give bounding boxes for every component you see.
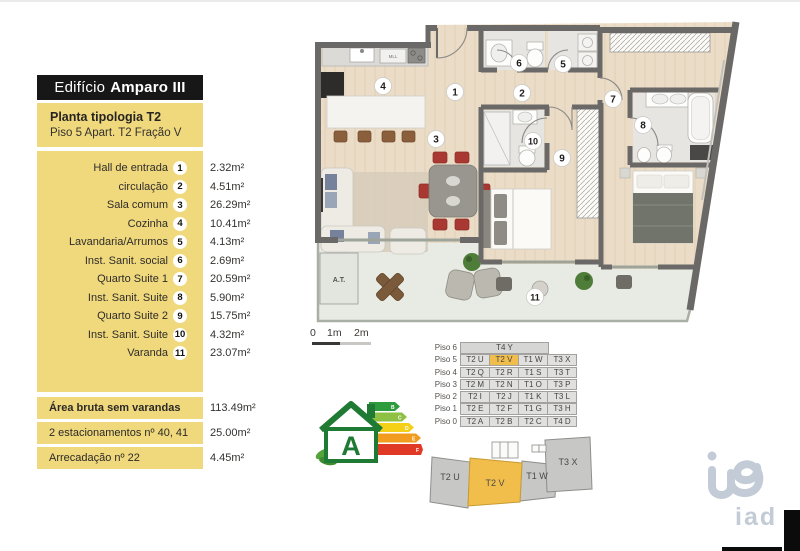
room-label: Lavandaria/Arrumos <box>37 236 168 248</box>
floor-label: Piso 3 <box>424 379 460 391</box>
room-row: circulação24.51m² <box>37 178 282 197</box>
floor-row: Piso 0 T2 A T2 B T2 C T4 D <box>424 416 577 428</box>
summary-area: 113.49m² <box>210 397 256 419</box>
unit-cell: T2 M <box>460 379 490 391</box>
lounge-chair <box>444 269 475 302</box>
marker-8: 8 <box>635 117 652 134</box>
scale-segment-light <box>340 342 371 345</box>
room-number-badge: 5 <box>173 235 187 249</box>
summary-row-gross-area: Área bruta sem varandas 113.49m² <box>37 397 282 419</box>
plan-subtitle: Planta tipologia T2 Piso 5 Apart. T2 Fra… <box>37 103 203 147</box>
scale-tick-0: 0 <box>310 327 316 339</box>
room-label: Quarto Suite 1 <box>37 273 168 285</box>
svg-text:7: 7 <box>610 95 616 106</box>
svg-text:F: F <box>416 448 419 454</box>
svg-text:4: 4 <box>380 82 386 93</box>
floors-matrix: Piso 6 T4 Y Piso 5 T2 U T2 V T1 W T3 X P… <box>424 342 577 428</box>
building-outline-diagram: T2 U T2 V T1 W T3 X <box>420 433 670 538</box>
room-number-badge: 6 <box>173 254 187 268</box>
room-number-badge: 3 <box>173 198 187 212</box>
marker-3: 3 <box>428 131 445 148</box>
room-area: 10.41m² <box>210 218 250 230</box>
unit-cell: T1 W <box>518 354 548 366</box>
outline-unit-t2u <box>430 457 470 508</box>
room-number-badge: 9 <box>173 309 187 323</box>
svg-text:9: 9 <box>559 154 565 165</box>
fridge <box>320 72 344 98</box>
dining-table <box>429 165 477 217</box>
unit-cell: T2 F <box>489 403 519 415</box>
room-label: Inst. Sanit. Suite <box>37 329 168 341</box>
unit-cell: T1 G <box>518 403 548 415</box>
svg-text:1: 1 <box>452 88 458 99</box>
marker-9: 9 <box>554 150 571 167</box>
floor-label: Piso 6 <box>424 342 460 354</box>
floor-label: Piso 0 <box>424 416 460 428</box>
photo-frame-corner <box>782 508 800 551</box>
marker-10: 10 <box>525 133 542 150</box>
energy-class-letter: A <box>341 431 361 461</box>
room-area: 2.69m² <box>210 255 244 267</box>
unit-cell: T3 P <box>547 379 577 391</box>
nightstand <box>620 168 630 178</box>
unit-cell: T2 N <box>489 379 519 391</box>
wardrobe-suite2 <box>577 105 600 218</box>
summary-label: Área bruta sem varandas <box>37 397 203 419</box>
nightstand <box>696 168 706 178</box>
building-title: Edifício Amparo III <box>37 75 203 100</box>
room-label: Quarto Suite 2 <box>37 310 168 322</box>
floor-plan: MLL <box>310 15 800 335</box>
svg-text:8: 8 <box>640 121 646 132</box>
outline-label-t3x: T3 X <box>558 457 577 467</box>
scale-tick-2m: 2m <box>354 327 369 339</box>
unit-cell: T3 H <box>547 403 577 415</box>
svg-text:3: 3 <box>433 135 439 146</box>
room-number-badge: 7 <box>173 272 187 286</box>
floor-row: Piso 5 T2 U T2 V T1 W T3 X <box>424 354 577 366</box>
energy-certificate-icon: B C D E F A <box>313 396 423 468</box>
bidet <box>638 148 651 163</box>
room-row: Inst. Sanit. Suite85.90m² <box>37 289 282 308</box>
unit-cell: T2 R <box>489 367 519 379</box>
room-area: 26.29m² <box>210 199 250 211</box>
scale-segment-dark <box>312 342 340 345</box>
floor-label: Piso 5 <box>424 354 460 366</box>
room-label: Varanda <box>37 347 168 359</box>
room-number-badge: 8 <box>173 291 187 305</box>
toilet <box>657 147 672 163</box>
unit-cell: T1 O <box>518 379 548 391</box>
unit-cell: T4 D <box>547 416 577 428</box>
svg-text:C: C <box>398 416 402 422</box>
summary-label: 2 estacionamentos nº 40, 41 <box>37 422 203 444</box>
room-row: Sala comum326.29m² <box>37 196 282 215</box>
room-label: Hall de entrada <box>37 162 168 174</box>
summary-area: 25.00m² <box>210 422 250 444</box>
room-area: 4.13m² <box>210 236 244 248</box>
outline-label-t2v: T2 V <box>485 478 504 488</box>
svg-text:B: B <box>391 405 395 411</box>
unit-cell: T2 E <box>460 403 490 415</box>
room-number-badge: 1 <box>173 161 187 175</box>
unit-cell: T2 U <box>460 354 490 366</box>
marker-1: 1 <box>447 84 464 101</box>
room-label: Inst. Sanit. social <box>37 255 168 267</box>
marker-5: 5 <box>555 56 572 73</box>
top-border <box>0 0 800 2</box>
room-area: 2.32m² <box>210 162 244 174</box>
floor-row: Piso 6 T4 Y <box>424 342 577 354</box>
rooms-legend: Hall de entrada12.32m² circulação24.51m²… <box>37 151 282 392</box>
kitchen-counter: MLL <box>322 45 428 66</box>
marker-7: 7 <box>605 91 622 108</box>
floor-label: Piso 1 <box>424 403 460 415</box>
svg-text:D: D <box>405 426 409 432</box>
room-label: circulação <box>37 181 168 193</box>
unit-cell: T3 T <box>547 367 577 379</box>
room-area: 4.51m² <box>210 181 244 193</box>
room-row: Quarto Suite 1720.59m² <box>37 270 282 289</box>
kitchen-island <box>327 96 425 128</box>
svg-text:10: 10 <box>528 137 538 147</box>
floor-row: Piso 4 T2 Q T2 R T1 S T3 T <box>424 367 577 379</box>
room-label: Sala comum <box>37 199 168 211</box>
room-number-badge: 10 <box>173 328 187 342</box>
room-row: Varanda1123.07m² <box>37 344 282 363</box>
outline-label-t1w: T1 W <box>526 471 548 481</box>
room-area: 23.07m² <box>210 347 250 359</box>
floorplan-sheet: Edifício Amparo III Planta tipologia T2 … <box>0 0 800 551</box>
wardrobe-suite1 <box>610 33 710 52</box>
svg-text:5: 5 <box>560 60 566 71</box>
room-area: 4.32m² <box>210 329 244 341</box>
outdoor-chair <box>616 275 632 289</box>
building-title-regular: Edifício <box>54 79 105 96</box>
room-row: Hall de entrada12.32m² <box>37 159 282 178</box>
bed-suite1 <box>620 168 706 243</box>
floor-label: Piso 4 <box>424 367 460 379</box>
unit-cell: T3 L <box>547 391 577 403</box>
room-row: Quarto Suite 2915.75m² <box>37 307 282 326</box>
summary-row-parking: 2 estacionamentos nº 40, 41 25.00m² <box>37 422 282 444</box>
outdoor-chair <box>496 277 512 291</box>
outline-stair-core <box>492 442 546 458</box>
room-area: 5.90m² <box>210 292 244 304</box>
iad-logo-text: iad <box>735 503 777 531</box>
marker-6: 6 <box>511 55 528 72</box>
unit-cell: T2 Q <box>460 367 490 379</box>
floor-fraction-label: Piso 5 Apart. T2 Fração V <box>50 127 203 139</box>
room-number-badge: 2 <box>173 180 187 194</box>
unit-cell-highlighted: T2 V <box>489 354 519 366</box>
room-row: Cozinha410.41m² <box>37 215 282 234</box>
iad-logo: iad <box>695 440 795 535</box>
room-label: Cozinha <box>37 218 168 230</box>
technical-area-label: A.T. <box>333 277 346 284</box>
marker-2: 2 <box>514 85 531 102</box>
floor-row: Piso 1 T2 E T2 F T1 G T3 H <box>424 403 577 415</box>
toilet <box>519 150 535 166</box>
cooktop <box>408 48 425 63</box>
room-number-badge: 4 <box>173 217 187 231</box>
room-area: 20.59m² <box>210 273 250 285</box>
unit-cell: T2 I <box>460 391 490 403</box>
scale-bar: 0 1m 2m <box>306 327 396 349</box>
scale-tick-1m: 1m <box>327 327 342 339</box>
room-number-badge: 11 <box>173 346 187 360</box>
bed-suite2 <box>483 189 551 249</box>
iad-logo-glyph <box>708 452 760 496</box>
svg-text:11: 11 <box>530 293 540 303</box>
plant <box>575 272 593 290</box>
plant <box>463 253 481 271</box>
unit-cell: T1 K <box>518 391 548 403</box>
summary-label: Arrecadação nº 22 <box>37 447 203 469</box>
floor-row: Piso 3 T2 M T2 N T1 O T3 P <box>424 379 577 391</box>
room-row: Inst. Sanit. social62.69m² <box>37 252 282 271</box>
marker-4: 4 <box>375 78 392 95</box>
unit-cell: T2 J <box>489 391 519 403</box>
room-row: Inst. Sanit. Suite104.32m² <box>37 326 282 345</box>
energy-house: A <box>321 404 381 461</box>
unit-cell: T1 S <box>518 367 548 379</box>
unit-cell: T3 X <box>547 354 577 366</box>
unit-cell: T2 C <box>518 416 548 428</box>
floor-label: Piso 2 <box>424 391 460 403</box>
summary-row-storage: Arrecadação nº 22 4.45m² <box>37 447 282 469</box>
unit-cell: T2 A <box>460 416 490 428</box>
rooms-list: Hall de entrada12.32m² circulação24.51m²… <box>37 159 282 363</box>
outline-label-t2u: T2 U <box>440 472 460 482</box>
summary-area: 4.45m² <box>210 447 244 469</box>
svg-text:2: 2 <box>519 89 525 100</box>
unit-cell: T4 Y <box>460 342 549 354</box>
typology-label: Planta tipologia T2 <box>50 110 203 124</box>
room-row: Lavandaria/Arrumos54.13m² <box>37 233 282 252</box>
room-label: Inst. Sanit. Suite <box>37 292 168 304</box>
floor-row: Piso 2 T2 I T2 J T1 K T3 L <box>424 391 577 403</box>
marker-11: 11 <box>527 289 544 306</box>
building-title-bold: Amparo III <box>110 79 185 96</box>
room-area: 15.75m² <box>210 310 250 322</box>
unit-cell: T2 B <box>489 416 519 428</box>
appliance-label: MLL <box>389 54 398 59</box>
svg-text:6: 6 <box>516 59 522 70</box>
